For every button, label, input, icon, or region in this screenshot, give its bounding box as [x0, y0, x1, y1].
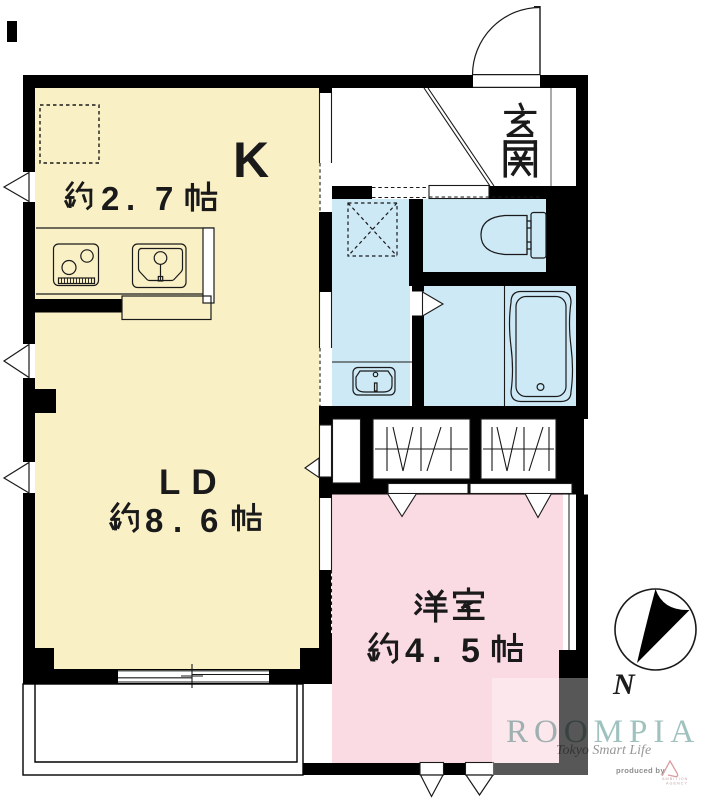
svg-text:LD: LD: [159, 463, 228, 502]
svg-text:K: K: [233, 132, 269, 188]
svg-text:6: 6: [200, 502, 218, 539]
svg-text:AGENCY: AGENCY: [666, 782, 688, 786]
svg-text:2: 2: [101, 180, 119, 217]
svg-text:4: 4: [405, 632, 424, 670]
svg-text:.: .: [126, 180, 135, 217]
svg-text:8: 8: [145, 502, 163, 539]
svg-text:AMBITION: AMBITION: [662, 777, 688, 781]
svg-text:7: 7: [155, 180, 173, 217]
svg-text:5: 5: [461, 632, 480, 670]
svg-text:N: N: [612, 668, 636, 701]
svg-text:Tokyo Smart Life: Tokyo Smart Life: [556, 743, 651, 758]
svg-text:.: .: [173, 502, 182, 539]
svg-text:produced by: produced by: [616, 766, 665, 775]
svg-text:.: .: [432, 632, 441, 670]
